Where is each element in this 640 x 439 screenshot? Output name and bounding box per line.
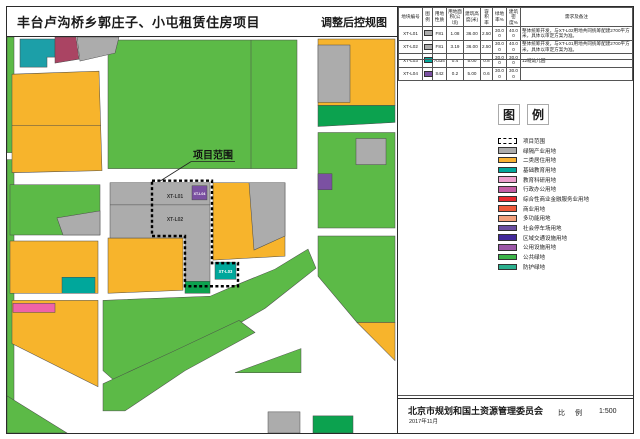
plan-type-label: 调整后控规图 <box>321 14 387 30</box>
legend-item: 商业用地 <box>498 204 589 214</box>
legend-item: 公共绿地 <box>498 252 589 262</box>
table-cell: 3.19 <box>447 40 464 53</box>
table-header-cell: 用地面积(公顷) <box>447 8 464 27</box>
legend-label: 综合性商业金融服务业用地 <box>523 195 589 203</box>
legend-swatch <box>498 167 517 174</box>
legend-swatch <box>498 234 517 241</box>
table-header-cell: 地块编号 <box>399 8 423 27</box>
legend-label: 行政办公用地 <box>523 185 556 193</box>
table-cell: 1.08 <box>447 27 464 40</box>
parcel-label-l04: XT-L04 <box>194 192 206 196</box>
legend-label: 商业用地 <box>523 205 545 213</box>
table-cell <box>423 40 433 53</box>
legend-label: 绿隔产业用地 <box>523 147 556 155</box>
table-cell: F81 <box>433 40 447 53</box>
legend-swatch <box>498 225 517 232</box>
table-cell-remark: 整体统筹开发，与XT-L01用地共同统筹配建2700平方米，具体以审定方案为准。 <box>521 40 633 53</box>
table-header-cell: 绿地率% <box>493 8 507 27</box>
table-cell: 36.00 <box>464 27 481 40</box>
legend-item: 防护绿地 <box>498 262 589 272</box>
parcel-label-l03: XT-L03 <box>219 269 233 274</box>
legend-item: 区域交通设施用地 <box>498 233 589 243</box>
table-cell: 40.00 <box>507 40 521 53</box>
legend-label: 区域交通设施用地 <box>523 234 567 242</box>
legend-item: 教育科研用地 <box>498 175 589 185</box>
legend-item: 社会停车场用地 <box>498 223 589 233</box>
title-block: 北京市规划和国土资源管理委员会 2017年11月 比 例 1:500 <box>398 398 633 433</box>
table-header-cell: 建筑高度(米) <box>464 8 481 27</box>
agency-name: 北京市规划和国土资源管理委员会 <box>408 404 543 417</box>
table-header-cell: 容积率 <box>481 8 493 27</box>
legend-box: 图 例 项目范围 绿隔产业用地 二类居住用地 基础教育用地 教育科研用地 行政办… <box>398 59 633 396</box>
parcel-label-l02: XT-L02 <box>167 217 184 223</box>
table-cell: 36.00 <box>464 40 481 53</box>
table-cell: 2.50 <box>481 27 493 40</box>
map-panel: 丰台卢沟桥乡郭庄子、小屯租赁住房项目 调整后控规图 <box>7 7 398 433</box>
legend-swatch <box>498 186 517 193</box>
legend-swatch <box>498 254 517 261</box>
table-cell: XT-L01 <box>399 27 423 40</box>
parcel-label-l01: XT-L01 <box>167 194 184 200</box>
legend-swatch <box>498 244 517 251</box>
scale-value: 1:500 <box>599 408 617 415</box>
table-cell: 30.00 <box>493 40 507 53</box>
legend-label: 教育科研用地 <box>523 176 556 184</box>
legend-item: 基础教育用地 <box>498 165 589 175</box>
legend-item: 项目范围 <box>498 136 589 146</box>
table-cell: 40.00 <box>507 27 521 40</box>
scale-label: 比 例 <box>558 408 586 418</box>
legend-item: 多功能用地 <box>498 214 589 224</box>
table-cell-remark: 整体统筹开发，与XT-L02用地共同统筹配建2700平方米，具体以审定方案为准。 <box>521 27 633 40</box>
landuse-chip <box>424 30 433 36</box>
info-panel: 地块编号 图例 用地性质 用地面积(公顷) 建筑高度(米) 容积率 绿地率% 建… <box>398 7 633 433</box>
legend-label: 多功能用地 <box>523 214 551 222</box>
table-cell <box>423 27 433 40</box>
legend-label: 社会停车场用地 <box>523 224 562 232</box>
legend-swatch <box>498 205 517 212</box>
legend-item: 行政办公用地 <box>498 184 589 194</box>
plan-map-svg: 项目范围 XT-L01 XT-L02 XT-L04 XT-L03 <box>7 37 397 433</box>
legend-swatch <box>498 215 517 222</box>
table-cell: F81 <box>433 27 447 40</box>
table-header-cell: 图例 <box>423 8 433 27</box>
legend-heading: 图 例 <box>498 104 549 125</box>
table-header-cell: 用地性质 <box>433 8 447 27</box>
table-cell: 2.50 <box>481 40 493 53</box>
page-title: 丰台卢沟桥乡郭庄子、小屯租赁住房项目 <box>17 12 260 31</box>
legend-heading-char: 例 <box>527 104 549 125</box>
table-cell: XT-L02 <box>399 40 423 53</box>
plan-date: 2017年11月 <box>409 417 438 425</box>
legend-swatch <box>498 176 517 183</box>
legend-label: 二类居住用地 <box>523 156 556 164</box>
table-header-row: 地块编号 图例 用地性质 用地面积(公顷) 建筑高度(米) 容积率 绿地率% 建… <box>399 8 633 27</box>
legend-swatch <box>498 196 517 203</box>
sheet-frame: 丰台卢沟桥乡郭庄子、小屯租赁住房项目 调整后控规图 <box>6 6 634 434</box>
legend-label: 项目范围 <box>523 137 545 145</box>
table-header-cell: 建筑密度% <box>507 8 521 27</box>
legend-swatch <box>498 157 517 164</box>
legend-item: 二类居住用地 <box>498 155 589 165</box>
legend-list: 项目范围 绿隔产业用地 二类居住用地 基础教育用地 教育科研用地 行政办公用地 … <box>498 136 589 272</box>
legend-item: 公用设施用地 <box>498 243 589 253</box>
title-bar: 丰台卢沟桥乡郭庄子、小屯租赁住房项目 调整后控规图 <box>7 7 397 37</box>
legend-swatch <box>498 264 517 271</box>
legend-heading-char: 图 <box>498 104 520 125</box>
legend-item: 综合性商业金融服务业用地 <box>498 194 589 204</box>
legend-label: 基础教育用地 <box>523 166 556 174</box>
table-cell: 30.00 <box>493 27 507 40</box>
plan-map: 项目范围 XT-L01 XT-L02 XT-L04 XT-L03 <box>7 37 397 433</box>
legend-swatch <box>498 147 517 154</box>
legend-label: 公共绿地 <box>523 253 545 261</box>
legend-label: 公用设施用地 <box>523 243 556 251</box>
table-row: XT-L01 F81 1.08 36.00 2.50 30.00 40.00 整… <box>399 27 633 40</box>
table-header-cell: 需求及备注 <box>521 8 633 27</box>
legend-label: 防护绿地 <box>523 263 545 271</box>
landuse-chip <box>424 44 433 50</box>
boundary-label: 项目范围 <box>193 149 233 162</box>
legend-swatch-project-boundary <box>498 138 517 145</box>
legend-item: 绿隔产业用地 <box>498 146 589 156</box>
table-row: XT-L02 F81 3.19 36.00 2.50 30.00 40.00 整… <box>399 40 633 53</box>
